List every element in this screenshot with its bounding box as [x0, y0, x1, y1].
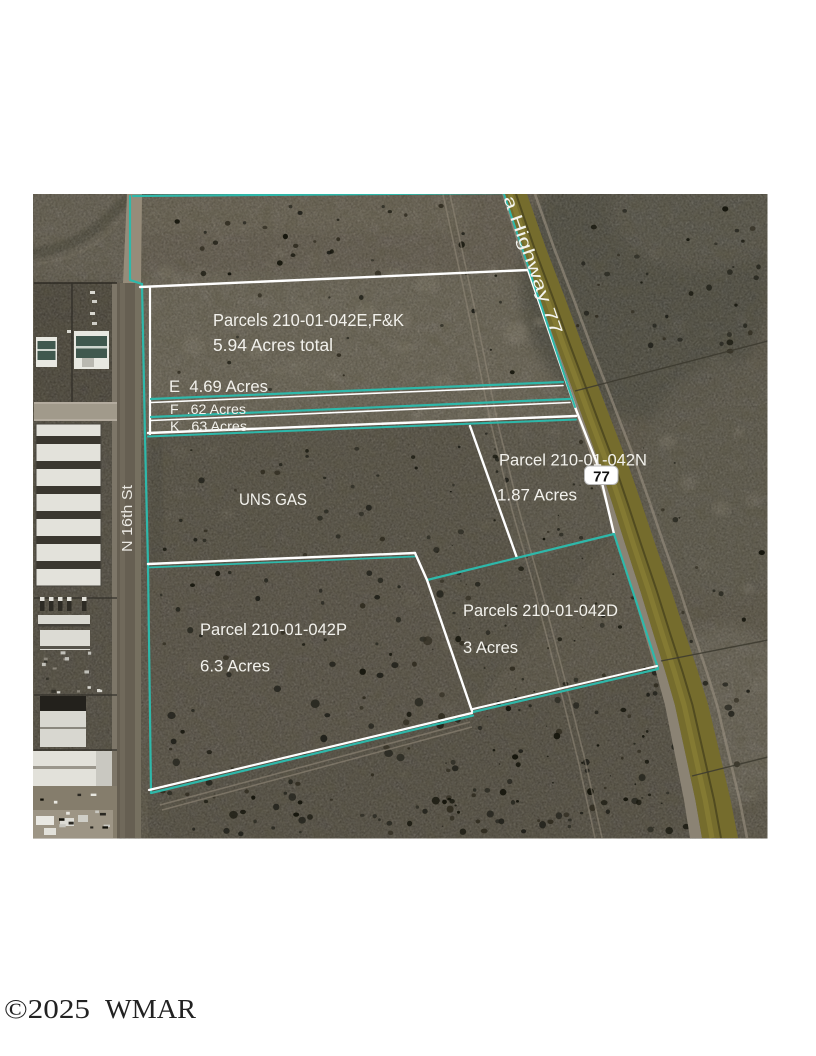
svg-text:Parcel 210-01-042P: Parcel 210-01-042P — [200, 620, 347, 639]
svg-text:©2025: ©2025 — [4, 994, 90, 1024]
svg-text:77: 77 — [593, 469, 610, 486]
svg-text:F .62 Acres: F .62 Acres — [170, 401, 246, 417]
svg-text:5.94 Acres total: 5.94 Acres total — [213, 335, 333, 355]
svg-text:UNS GAS: UNS GAS — [239, 490, 307, 509]
svg-text:K .63 Acres: K .63 Acres — [170, 418, 247, 434]
svg-text:WMAR: WMAR — [105, 994, 196, 1024]
svg-text:Parcels 210-01-042E,F&K: Parcels 210-01-042E,F&K — [213, 310, 404, 330]
svg-text:Parcel 210-01-042N: Parcel 210-01-042N — [499, 451, 647, 470]
svg-text:N 16th St: N 16th St — [120, 485, 136, 552]
svg-text:6.3 Acres: 6.3 Acres — [200, 657, 270, 676]
svg-text:E 4.69 Acres: E 4.69 Acres — [169, 377, 268, 396]
svg-text:Parcels 210-01-042D: Parcels 210-01-042D — [463, 601, 618, 620]
svg-text:3 Acres: 3 Acres — [463, 638, 518, 657]
svg-text:1.87 Acres: 1.87 Acres — [497, 486, 577, 505]
